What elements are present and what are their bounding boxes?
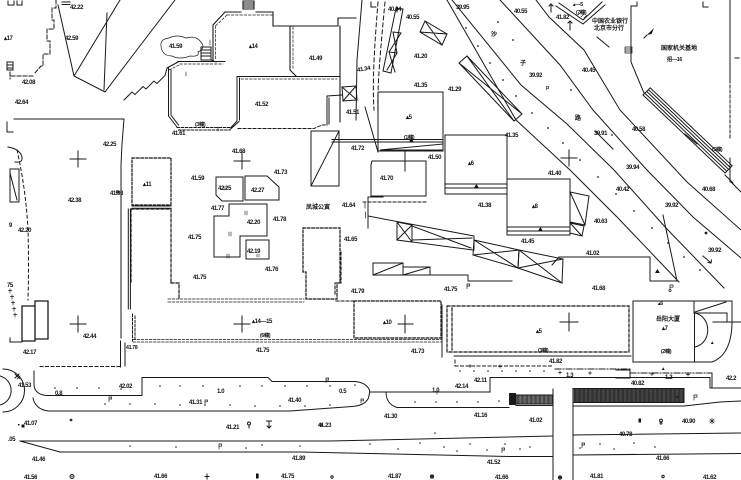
svg-text:p: p <box>546 85 549 91</box>
svg-text:41.02: 41.02 <box>586 251 600 257</box>
svg-text:41.29: 41.29 <box>448 87 462 93</box>
svg-text:41.75: 41.75 <box>281 474 295 480</box>
svg-text:▴8: ▴8 <box>531 204 539 210</box>
svg-text:39.92: 39.92 <box>529 73 543 79</box>
svg-text:40.68: 40.68 <box>702 187 716 193</box>
svg-text:(3幢): (3幢) <box>195 120 206 128</box>
svg-text:(6幢): (6幢) <box>260 331 271 339</box>
svg-text:1.3: 1.3 <box>566 373 574 379</box>
svg-text:0.8: 0.8 <box>55 391 63 397</box>
svg-text:41.31: 41.31 <box>189 400 203 406</box>
svg-text:▴5: ▴5 <box>405 115 413 121</box>
svg-text:41.20: 41.20 <box>414 54 428 60</box>
svg-text:▴14: ▴14 <box>248 44 259 50</box>
svg-text:41.62: 41.62 <box>703 475 717 480</box>
svg-text:39.92: 39.92 <box>708 248 722 254</box>
svg-text:41.61: 41.61 <box>172 131 186 137</box>
svg-text:41.23: 41.23 <box>318 423 332 429</box>
svg-text:40.82: 40.82 <box>631 381 645 387</box>
svg-text:41.46: 41.46 <box>32 457 46 463</box>
svg-text:42.59: 42.59 <box>65 36 79 42</box>
svg-text:1.2: 1.2 <box>665 375 673 381</box>
svg-text:41.68: 41.68 <box>592 286 606 292</box>
svg-text:39.91: 39.91 <box>594 131 608 137</box>
svg-text:招—16: 招—16 <box>667 55 682 63</box>
svg-text:41.52: 41.52 <box>255 102 269 108</box>
svg-text:41.59: 41.59 <box>191 176 205 182</box>
svg-text:41.50: 41.50 <box>428 155 442 161</box>
svg-text:40.64: 40.64 <box>388 7 402 13</box>
svg-text:41.66: 41.66 <box>495 475 509 480</box>
svg-text:41.76: 41.76 <box>265 267 279 273</box>
svg-text:41.70: 41.70 <box>380 176 394 182</box>
svg-text:41.66: 41.66 <box>656 456 670 462</box>
svg-text:(2幢): (2幢) <box>661 347 672 355</box>
svg-text:▴5: ▴5 <box>535 329 543 335</box>
svg-text:41.75: 41.75 <box>188 235 202 241</box>
svg-text:子: 子 <box>520 60 526 67</box>
svg-text:42.2: 42.2 <box>726 376 737 382</box>
svg-text:▴7: ▴7 <box>661 326 669 332</box>
svg-text:(3幢): (3幢) <box>538 346 549 354</box>
svg-text:40.42: 40.42 <box>616 187 630 193</box>
svg-text:42.38: 42.38 <box>68 198 82 204</box>
svg-text:41.53: 41.53 <box>18 383 32 389</box>
svg-text:41.21: 41.21 <box>226 425 240 431</box>
svg-text:42.02: 42.02 <box>119 384 133 390</box>
svg-text:岳阳大厦: 岳阳大厦 <box>656 315 681 323</box>
svg-text:40.78: 40.78 <box>619 432 633 438</box>
svg-text:42.20: 42.20 <box>18 228 32 234</box>
svg-text:42.27: 42.27 <box>251 188 265 194</box>
svg-text:(7幢): (7幢) <box>576 8 587 16</box>
svg-text:中国农业银行: 中国农业银行 <box>592 17 628 25</box>
svg-text:1.0: 1.0 <box>217 389 225 395</box>
svg-text:41.64: 41.64 <box>342 203 356 209</box>
svg-text:41.45: 41.45 <box>521 239 535 245</box>
svg-text:41.07: 41.07 <box>24 421 38 427</box>
svg-text:41.40: 41.40 <box>288 398 302 404</box>
svg-text:北京市分行: 北京市分行 <box>594 24 624 32</box>
svg-text:42.22: 42.22 <box>70 5 84 11</box>
svg-text:40.55: 40.55 <box>406 15 420 21</box>
svg-text:41.59: 41.59 <box>169 44 183 50</box>
svg-text:41.81: 41.81 <box>590 474 604 480</box>
svg-text:41.82: 41.82 <box>549 359 563 365</box>
svg-text:42.08: 42.08 <box>22 80 36 86</box>
svg-text:41.93: 41.93 <box>110 191 124 197</box>
svg-text:41.79: 41.79 <box>351 289 365 295</box>
svg-text:(5幢): (5幢) <box>712 145 723 153</box>
svg-text:41.73: 41.73 <box>411 349 425 355</box>
svg-text:41.51: 41.51 <box>346 110 360 116</box>
svg-text:沙: 沙 <box>491 31 497 38</box>
svg-text:▴6: ▴6 <box>657 301 663 307</box>
svg-text:42.11: 42.11 <box>474 378 488 384</box>
svg-text:41.02: 41.02 <box>529 418 543 424</box>
svg-text:凤城公寅: 凤城公寅 <box>306 203 330 211</box>
svg-text:.05: .05 <box>8 437 16 443</box>
svg-text:40.55: 40.55 <box>514 9 528 15</box>
svg-text:41.16: 41.16 <box>474 413 488 419</box>
svg-text:42.19: 42.19 <box>247 249 261 255</box>
svg-text:39.95: 39.95 <box>456 5 470 11</box>
svg-text:41.35: 41.35 <box>505 133 519 139</box>
svg-text:41.78: 41.78 <box>273 217 287 223</box>
svg-text:41.73: 41.73 <box>274 170 288 176</box>
svg-text:▴17: ▴17 <box>3 36 14 42</box>
svg-text:40.90: 40.90 <box>682 419 696 425</box>
svg-text:▴10: ▴10 <box>382 320 393 326</box>
svg-text:41.49: 41.49 <box>309 56 323 62</box>
svg-text:41.78: 41.78 <box>126 345 138 351</box>
svg-text:42.64: 42.64 <box>15 100 29 106</box>
svg-text:41.68: 41.68 <box>232 149 246 155</box>
svg-text:41.52: 41.52 <box>487 460 501 466</box>
svg-text:41.75: 41.75 <box>444 287 458 293</box>
svg-text:41.56: 41.56 <box>24 475 38 480</box>
svg-text:40.45: 40.45 <box>582 68 596 74</box>
svg-text:42.17: 42.17 <box>23 350 37 356</box>
svg-text:41.66: 41.66 <box>154 474 168 480</box>
svg-text:42.20: 42.20 <box>247 220 261 226</box>
svg-text:41.35: 41.35 <box>414 83 428 89</box>
svg-text:路: 路 <box>575 114 582 122</box>
svg-text:▴—5: ▴—5 <box>572 2 583 8</box>
svg-text:41.30: 41.30 <box>384 414 398 420</box>
svg-text:41.89: 41.89 <box>292 456 306 462</box>
svg-text:1.0: 1.0 <box>432 388 440 394</box>
svg-text:0.5: 0.5 <box>339 389 347 395</box>
svg-text:41.77: 41.77 <box>211 206 225 212</box>
svg-text:(1幢): (1幢) <box>404 133 415 141</box>
svg-text:41.75: 41.75 <box>193 275 207 281</box>
svg-text:40.58: 40.58 <box>632 127 646 133</box>
svg-text:42.14: 42.14 <box>455 384 469 390</box>
svg-text:▴6: ▴6 <box>467 161 475 167</box>
svg-text:▴11: ▴11 <box>142 182 152 188</box>
svg-text:41.65: 41.65 <box>344 237 358 243</box>
svg-text:40.63: 40.63 <box>594 219 608 225</box>
svg-text:41.72: 41.72 <box>351 146 365 152</box>
svg-text:42.25: 42.25 <box>103 142 117 148</box>
svg-text:国家机关基地: 国家机关基地 <box>661 44 697 52</box>
svg-text:41.40: 41.40 <box>548 171 562 177</box>
svg-text:41.75: 41.75 <box>256 348 270 354</box>
svg-text:39.94: 39.94 <box>626 165 640 171</box>
svg-text:42.25: 42.25 <box>218 186 232 192</box>
svg-text:39.92: 39.92 <box>665 203 679 209</box>
svg-text:42.44: 42.44 <box>83 334 97 340</box>
svg-text:▴14—15: ▴14—15 <box>251 319 273 325</box>
svg-text:41.87: 41.87 <box>388 474 402 480</box>
svg-text:41.82: 41.82 <box>556 15 570 21</box>
svg-text:41.38: 41.38 <box>478 203 492 209</box>
